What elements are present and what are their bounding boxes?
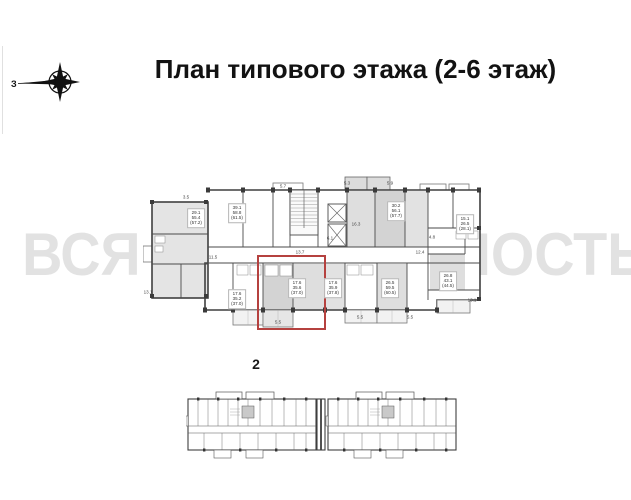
compass-rose-icon: З	[10, 48, 90, 110]
staircase	[290, 190, 318, 235]
main-floor-plan	[143, 176, 488, 332]
mini-overview-plan	[186, 388, 458, 464]
elevator-shaft	[328, 204, 346, 246]
compass-star	[40, 62, 80, 102]
scan-edge-artifact	[2, 46, 3, 134]
mini-plan-expansion-joint	[317, 399, 325, 450]
page: ВСЯ НЕДВИЖИМОСТЬ План типового этажа (2-…	[0, 0, 631, 500]
mini-plan-section-right	[326, 392, 456, 458]
compass-west-label: З	[11, 79, 17, 89]
page-title: План типового этажа (2-6 этаж)	[123, 54, 588, 85]
mini-plan-section-left	[186, 392, 316, 458]
section-number-label: 2	[240, 356, 272, 372]
